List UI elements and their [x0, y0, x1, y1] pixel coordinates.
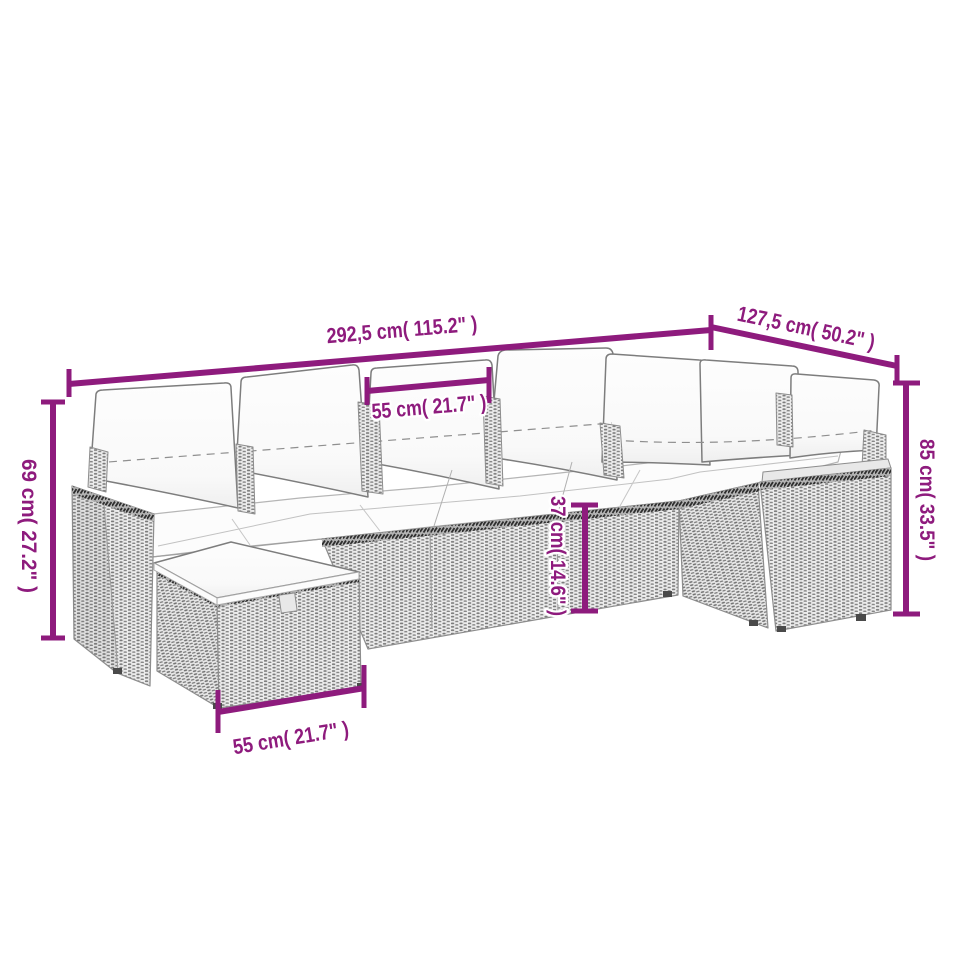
svg-text:69 cm( 27.2" ): 69 cm( 27.2" )	[17, 459, 41, 593]
svg-text:37 cm( 14.6" ): 37 cm( 14.6" )	[546, 496, 570, 616]
svg-text:85 cm( 33.5" ): 85 cm( 33.5" )	[915, 439, 939, 561]
